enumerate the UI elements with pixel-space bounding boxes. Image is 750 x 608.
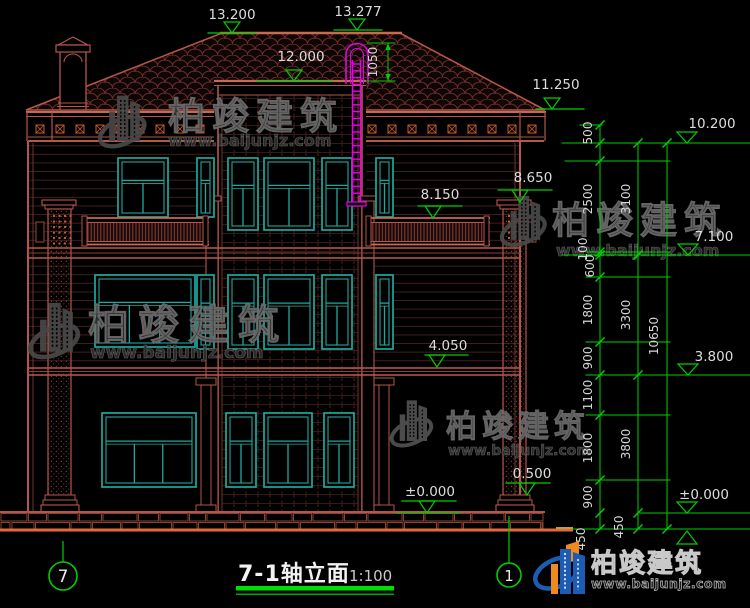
dim-inner-6: 1100 — [581, 380, 595, 411]
brand-logo: 柏竣建筑 www.baijunjz.com — [530, 541, 726, 595]
svg-text:12.000: 12.000 — [277, 49, 324, 65]
brand-logo-name: 柏竣建筑 — [591, 548, 703, 579]
dim-mid-2: 3800 — [619, 429, 633, 460]
window — [264, 158, 314, 230]
elevation-drawing: 柏竣建筑 www.baijunjz.com 柏竣建筑 www.baijunjz.… — [0, 0, 750, 608]
brand-logo-site: www.baijunjz.com — [591, 576, 727, 591]
dim-inner-0: 500 — [581, 122, 595, 145]
level-mark-10200: 10.200 — [677, 116, 736, 143]
watermark-brand: 柏竣建筑 — [446, 409, 590, 445]
svg-text:8.150: 8.150 — [421, 187, 460, 203]
dim-inner-1: 2500 — [581, 184, 595, 215]
svg-text:13.277: 13.277 — [334, 4, 381, 20]
dim-mid-1: 3300 — [619, 300, 633, 331]
brand-logo-icon — [530, 541, 585, 595]
level-mark-foundation — [677, 531, 697, 544]
window — [197, 158, 214, 217]
level-mark-eave-right: 11.250 — [532, 77, 584, 109]
watermark-logo-icon — [388, 400, 435, 451]
watermark-4: 柏竣建筑 www.baijunjz.com — [388, 400, 591, 459]
window — [324, 413, 354, 487]
window — [322, 158, 352, 230]
level-mark-ridge-left: 13.200 — [208, 7, 256, 33]
title-underline-thin — [236, 594, 394, 596]
chimney — [56, 37, 90, 110]
dim-inner-8: 900 — [581, 486, 595, 509]
watermark-3: 柏竣建筑 www.baijunjz.com — [498, 196, 728, 260]
watermark-site: www.baijunjz.com — [168, 131, 331, 150]
title-underline-thick — [236, 586, 394, 591]
dim-inner-7: 1800 — [581, 433, 595, 464]
window — [264, 413, 312, 487]
dim-mid-0: 3100 — [619, 184, 633, 215]
level-mark-0-right: ±0.000 — [677, 487, 729, 513]
svg-text:10.200: 10.200 — [688, 116, 735, 132]
window — [102, 413, 196, 487]
dim-inner-3: 600 — [583, 255, 597, 278]
dim-inner-4: 1800 — [581, 295, 595, 326]
title-block: 7 1 7-1轴立面 1:100 — [49, 516, 521, 595]
svg-text:8.650: 8.650 — [514, 170, 553, 186]
drawing-scale: 1:100 — [349, 567, 392, 585]
axis-bubble-left: 7 — [58, 567, 69, 587]
level-mark-ground-left: ±0.000 — [402, 484, 456, 513]
dim-total: 10650 — [647, 317, 661, 355]
cad-viewport: 柏竣建筑 www.baijunjz.com 柏竣建筑 www.baijunjz.… — [0, 0, 750, 608]
window — [376, 275, 393, 349]
dim-inner-5: 900 — [581, 347, 595, 370]
axis-bubble-right: 1 — [504, 567, 514, 585]
dim-mid-3: 450 — [612, 516, 626, 539]
watermark-brand: 柏竣建筑 — [88, 301, 288, 349]
watermark-site: www.baijunjz.com — [448, 443, 591, 459]
svg-text:13.200: 13.200 — [208, 7, 255, 23]
window — [118, 158, 168, 217]
watermark-site: www.baijunjz.com — [90, 343, 264, 363]
window — [228, 158, 258, 230]
plinth-and-ground — [0, 512, 573, 530]
svg-text:0.500: 0.500 — [513, 466, 552, 482]
svg-text:7.100: 7.100 — [695, 229, 734, 245]
window — [226, 413, 256, 487]
svg-text:±0.000: ±0.000 — [679, 487, 729, 503]
drawing-title: 7-1轴立面 — [238, 561, 350, 587]
svg-text:3.800: 3.800 — [695, 349, 734, 365]
svg-text:4.050: 4.050 — [429, 338, 468, 354]
svg-text:±0.000: ±0.000 — [405, 484, 455, 500]
svg-text:1050: 1050 — [366, 47, 380, 78]
window — [376, 158, 393, 217]
svg-text:11.250: 11.250 — [532, 77, 579, 93]
window — [322, 275, 352, 349]
level-mark-3800: 3.800 — [678, 349, 733, 375]
level-mark-ridge-peak: 13.277 — [334, 4, 382, 30]
